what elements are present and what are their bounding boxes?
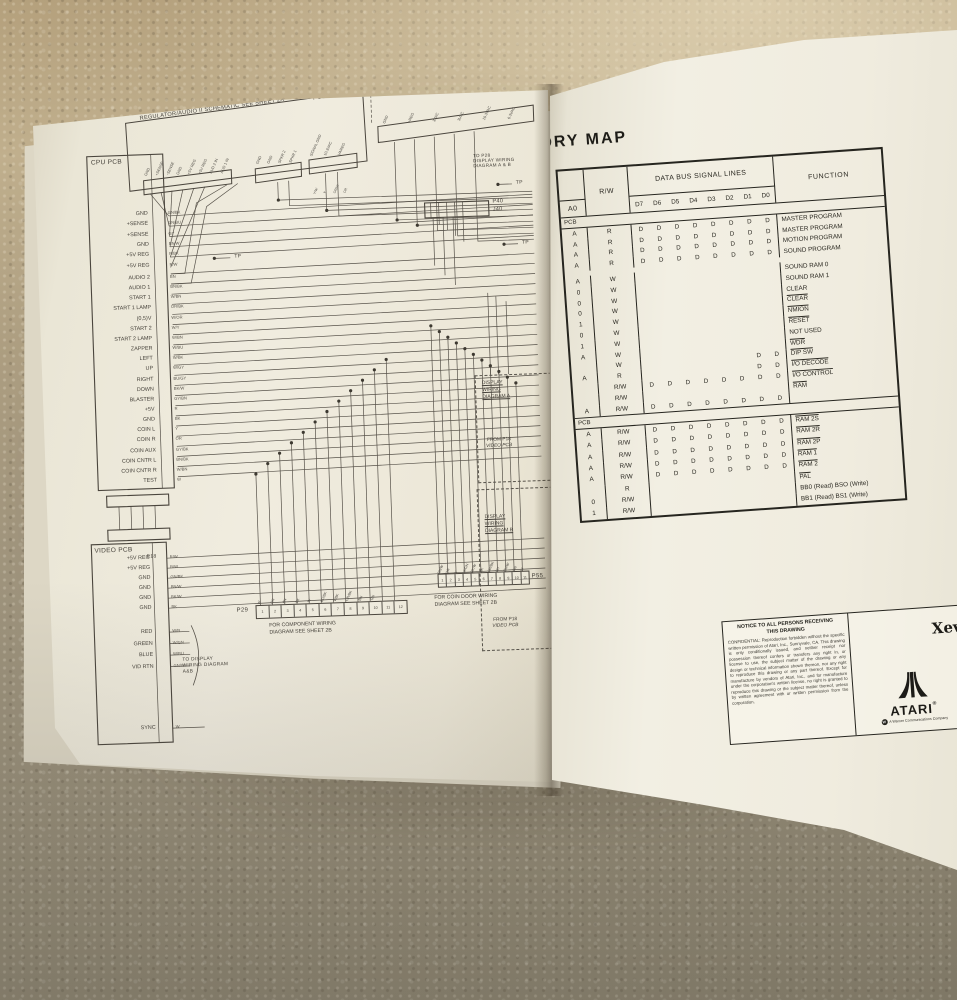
rw-cell: R xyxy=(590,257,635,271)
pin-slot xyxy=(155,325,169,331)
memory-map-title: ORY MAP xyxy=(539,129,628,153)
junction-dot xyxy=(480,358,483,361)
junction-dot xyxy=(496,183,499,186)
memory-map-table: R/WDATA BUS SIGNAL LINESFUNCTIONA0D7D6D5… xyxy=(555,147,907,523)
notice-text-cell: NOTICE TO ALL PERSONS RECEIVING THIS DRA… xyxy=(722,613,856,743)
junction-dot xyxy=(361,379,364,382)
wire xyxy=(443,217,445,275)
component-note-line2: DIAGRAM SEE SHEET 2B xyxy=(269,627,332,635)
junction-dot xyxy=(455,341,458,344)
bit-cell: D xyxy=(652,254,671,266)
bit-cell xyxy=(705,499,724,512)
connector-pin-number: 1 xyxy=(256,606,269,618)
wire xyxy=(431,203,432,219)
pin-slot xyxy=(156,640,170,646)
connector-pin-number: 10 xyxy=(370,602,383,614)
function-label: RAM 2S xyxy=(795,415,819,424)
pin-slot xyxy=(151,231,165,237)
bus-bit-label: D6 xyxy=(648,194,667,211)
function-label: WDR xyxy=(790,338,805,346)
wire xyxy=(268,464,273,605)
p40-label: P40 xyxy=(492,198,503,204)
junction-dot xyxy=(446,336,449,339)
wire xyxy=(439,332,447,574)
brand-cell: Xevi ATARI® W A Warner Communications xyxy=(848,605,957,735)
pin-slot xyxy=(159,457,173,463)
p29-label: P29 xyxy=(237,607,249,613)
wire xyxy=(488,293,491,375)
wire xyxy=(131,506,132,529)
pin-slot xyxy=(160,477,174,483)
junction-dot xyxy=(429,324,432,327)
pin-slot xyxy=(153,574,167,580)
testpoint-label: TP xyxy=(522,239,529,245)
pin-slot xyxy=(152,262,166,268)
wire xyxy=(439,202,440,224)
addr-cell: 1 xyxy=(581,507,608,520)
pin-slot xyxy=(154,604,168,610)
photo-open-service-manual: REGULATOR/AUDIO II SCHEMATIC SEE SHEET 2… xyxy=(0,0,957,1000)
wire xyxy=(327,412,334,603)
cpu-pcb-title: CPU PCB xyxy=(91,159,122,167)
pin-slot xyxy=(156,375,170,381)
bit-cell: D xyxy=(724,249,743,261)
j40-label: J40 xyxy=(493,206,503,212)
bit-cell xyxy=(741,497,760,510)
bit-cell xyxy=(723,498,742,511)
pin-slot xyxy=(156,663,170,669)
pin-slot xyxy=(158,416,172,422)
pin-slot xyxy=(154,584,168,590)
bus-bit-label: D0 xyxy=(756,187,775,204)
function-label: RAM 2R xyxy=(796,426,820,435)
bit-cell xyxy=(669,502,688,515)
atari-text: ATARI xyxy=(890,701,934,719)
from-p18-line1: FROM P18 xyxy=(493,617,517,623)
function-label: CLEAR xyxy=(787,295,808,303)
junction-dot xyxy=(489,364,492,367)
testpoint-label: TP xyxy=(516,180,523,186)
bus-bit-label: D4 xyxy=(684,192,703,209)
pin-slot xyxy=(160,467,174,473)
warner-w-badge-icon: W xyxy=(881,719,887,725)
wire xyxy=(386,359,394,600)
notice-box: NOTICE TO ALL PERSONS RECEIVING THIS DRA… xyxy=(721,604,957,745)
pin-slot xyxy=(155,345,169,351)
col-rw: R/W xyxy=(584,167,631,216)
pin-slot xyxy=(153,284,167,290)
registered-mark: ® xyxy=(932,700,937,706)
from-p18-line2: VIDEO PCB xyxy=(486,443,512,449)
bit-cell: D xyxy=(662,399,681,411)
pin-slot xyxy=(156,365,170,371)
wire xyxy=(448,337,456,573)
pin-slot xyxy=(157,386,171,392)
junction-dot xyxy=(277,198,280,201)
wire xyxy=(506,301,509,374)
bit-cell: D xyxy=(706,251,725,263)
wire xyxy=(351,391,358,602)
function-label: BB1 (Read) BS1 (Write) xyxy=(801,491,868,503)
rw-cell: R/W xyxy=(607,504,652,518)
connector-pin-number: 2 xyxy=(269,605,282,617)
bus-bit-label: D7 xyxy=(629,195,648,212)
bit-cell: D xyxy=(698,397,717,409)
wire xyxy=(339,401,346,602)
bus-bit-label: D3 xyxy=(702,190,721,207)
video-pcb-title: VIDEO PCB xyxy=(94,546,132,554)
function-label: NMION xyxy=(788,306,809,314)
pin-slot xyxy=(156,651,170,657)
function-label: SOUND PROGRAM xyxy=(783,244,840,255)
function-label: RAM 1 xyxy=(798,449,818,457)
function-label: CLEAR xyxy=(786,284,807,292)
bit-cell: D xyxy=(752,393,771,405)
wire xyxy=(291,443,297,604)
from-p18-line2: VIDEO PCB xyxy=(492,623,518,629)
wire xyxy=(119,507,120,530)
junction-dot xyxy=(438,330,441,333)
bit-cell: D xyxy=(770,392,789,404)
right-page-memory-map: ORY MAP R/WDATA BUS SIGNAL LINESFUNCTION… xyxy=(544,30,957,882)
pin-slot xyxy=(152,241,166,247)
wire xyxy=(214,258,230,259)
pin-slot xyxy=(151,210,165,216)
bit-cell: D xyxy=(644,401,663,413)
pin-slot xyxy=(159,436,173,442)
bit-cell: D xyxy=(670,253,689,265)
bit-cell xyxy=(651,503,670,516)
notice-title-line2: THIS DRAWING xyxy=(766,626,805,635)
pin-slot xyxy=(154,315,168,321)
junction-dot xyxy=(290,441,293,444)
wire xyxy=(474,129,534,241)
testpoint-label: TP xyxy=(234,253,241,259)
junction-dot xyxy=(463,347,466,350)
wire xyxy=(496,297,499,375)
schematic-content: REGULATOR/AUDIO II SCHEMATIC SEE SHEET 2… xyxy=(13,79,567,803)
junction-dot xyxy=(472,353,475,356)
wire xyxy=(456,343,464,573)
wire xyxy=(280,453,285,604)
connector-pin-number: 11 xyxy=(382,601,395,613)
from-p18-line1: FROM P18 xyxy=(487,437,511,443)
bit-cell: D xyxy=(734,394,753,406)
wire xyxy=(455,202,456,236)
from-p18-note: FROM P18 VIDEO PCB xyxy=(492,617,519,630)
col-function: FUNCTION xyxy=(773,149,884,202)
bus-bit-label: D2 xyxy=(720,189,739,206)
pin-slot xyxy=(159,446,173,452)
pin-slot xyxy=(151,220,165,226)
function-label: NOT USED xyxy=(789,326,822,335)
function-label: I/O DECODE xyxy=(791,358,828,368)
to-display-note: TO DISPLAY WIRING DIAGRAM A&B xyxy=(182,656,233,676)
pin-slot xyxy=(153,564,167,570)
pin-slot xyxy=(158,426,172,432)
junction-dot xyxy=(325,410,328,413)
bit-cell xyxy=(778,494,797,507)
bus-bit-label: D1 xyxy=(738,188,757,205)
wire xyxy=(155,506,156,529)
wire xyxy=(143,506,144,529)
function-label: DIP SW xyxy=(791,349,814,358)
connector-pin-number: 7 xyxy=(332,603,345,615)
connector-pin-number: 3 xyxy=(282,605,295,617)
connector-pin-number: 8 xyxy=(344,603,357,615)
pin-slot xyxy=(153,554,167,560)
junction-dot xyxy=(302,431,305,434)
junction-dot xyxy=(349,389,352,392)
atari-branding: ATARI® W A Warner Communications Company xyxy=(852,667,957,727)
function-label: RESET xyxy=(788,317,809,325)
component-wiring-note: FOR COMPONENT WIRING DIAGRAM SEE SHEET 2… xyxy=(269,620,336,636)
pcb-box xyxy=(107,494,169,507)
junction-dot xyxy=(497,370,500,373)
pin-slot xyxy=(155,628,169,634)
bit-cell: D xyxy=(742,248,761,260)
wire xyxy=(431,326,440,574)
notice-body: CONFIDENTIAL: Reproduction forbidden wit… xyxy=(728,632,849,706)
addr-cell: A xyxy=(574,405,601,418)
connector-pin-number: 4 xyxy=(294,604,307,616)
junction-dot xyxy=(313,420,316,423)
connector-pin-number: 6 xyxy=(319,603,332,615)
connector-pin-number: 9 xyxy=(357,602,370,614)
junction-dot xyxy=(337,399,340,402)
left-page-schematic: REGULATOR/AUDIO II SCHEMATIC SEE SHEET 2… xyxy=(25,88,555,794)
wire xyxy=(337,165,532,216)
function-label: PAL xyxy=(799,472,811,480)
pin-slot xyxy=(154,594,168,600)
junction-dot xyxy=(266,462,269,465)
function-label: RAM 2P xyxy=(797,438,821,447)
pin-slot xyxy=(155,335,169,341)
pcb-box xyxy=(108,528,170,541)
from-p18-note: FROM P18 VIDEO PCB xyxy=(486,437,513,450)
memory-map-content: ORY MAP R/WDATA BUS SIGNAL LINESFUNCTION… xyxy=(550,62,957,850)
bit-cell: D xyxy=(688,252,707,264)
junction-dot xyxy=(395,218,398,221)
wire xyxy=(315,422,321,603)
to-p28-note: TO P28 DISPLAY WIRING DIAGRAM A & B xyxy=(473,152,515,168)
bit-cell: D xyxy=(716,396,735,408)
schematic-box xyxy=(309,153,358,174)
pin-slot xyxy=(159,724,173,730)
bit-cell xyxy=(759,495,778,508)
wire xyxy=(303,432,309,603)
junction-dot xyxy=(325,209,328,212)
pin-slot xyxy=(156,355,170,361)
function-label: RAM xyxy=(793,382,807,390)
bit-cell: D xyxy=(680,398,699,410)
pin-slot xyxy=(153,274,167,280)
junction-dot xyxy=(502,243,505,246)
addr-cell: A xyxy=(564,260,591,273)
pin-slot xyxy=(157,396,171,402)
bit-cell: D xyxy=(760,247,779,259)
bit-cell: D xyxy=(634,256,653,268)
junction-dot xyxy=(416,224,419,227)
bit-cell xyxy=(687,500,706,513)
junction-dot xyxy=(278,452,281,455)
bus-bit-label: D5 xyxy=(666,193,685,210)
function-label: RAM 2 xyxy=(798,461,818,469)
pin-slot xyxy=(154,304,168,310)
col-addr: A0 xyxy=(560,200,587,218)
pin-slot xyxy=(152,251,166,257)
junction-dot xyxy=(385,358,388,361)
pin-slot xyxy=(154,294,168,300)
connector-pin-number: 5 xyxy=(307,604,320,616)
game-title: Xevi xyxy=(931,617,957,637)
connector-pin-number: 12 xyxy=(395,601,407,613)
atari-fuji-logo-icon xyxy=(894,670,930,699)
pin-slot xyxy=(157,406,171,412)
junction-dot xyxy=(373,368,376,371)
